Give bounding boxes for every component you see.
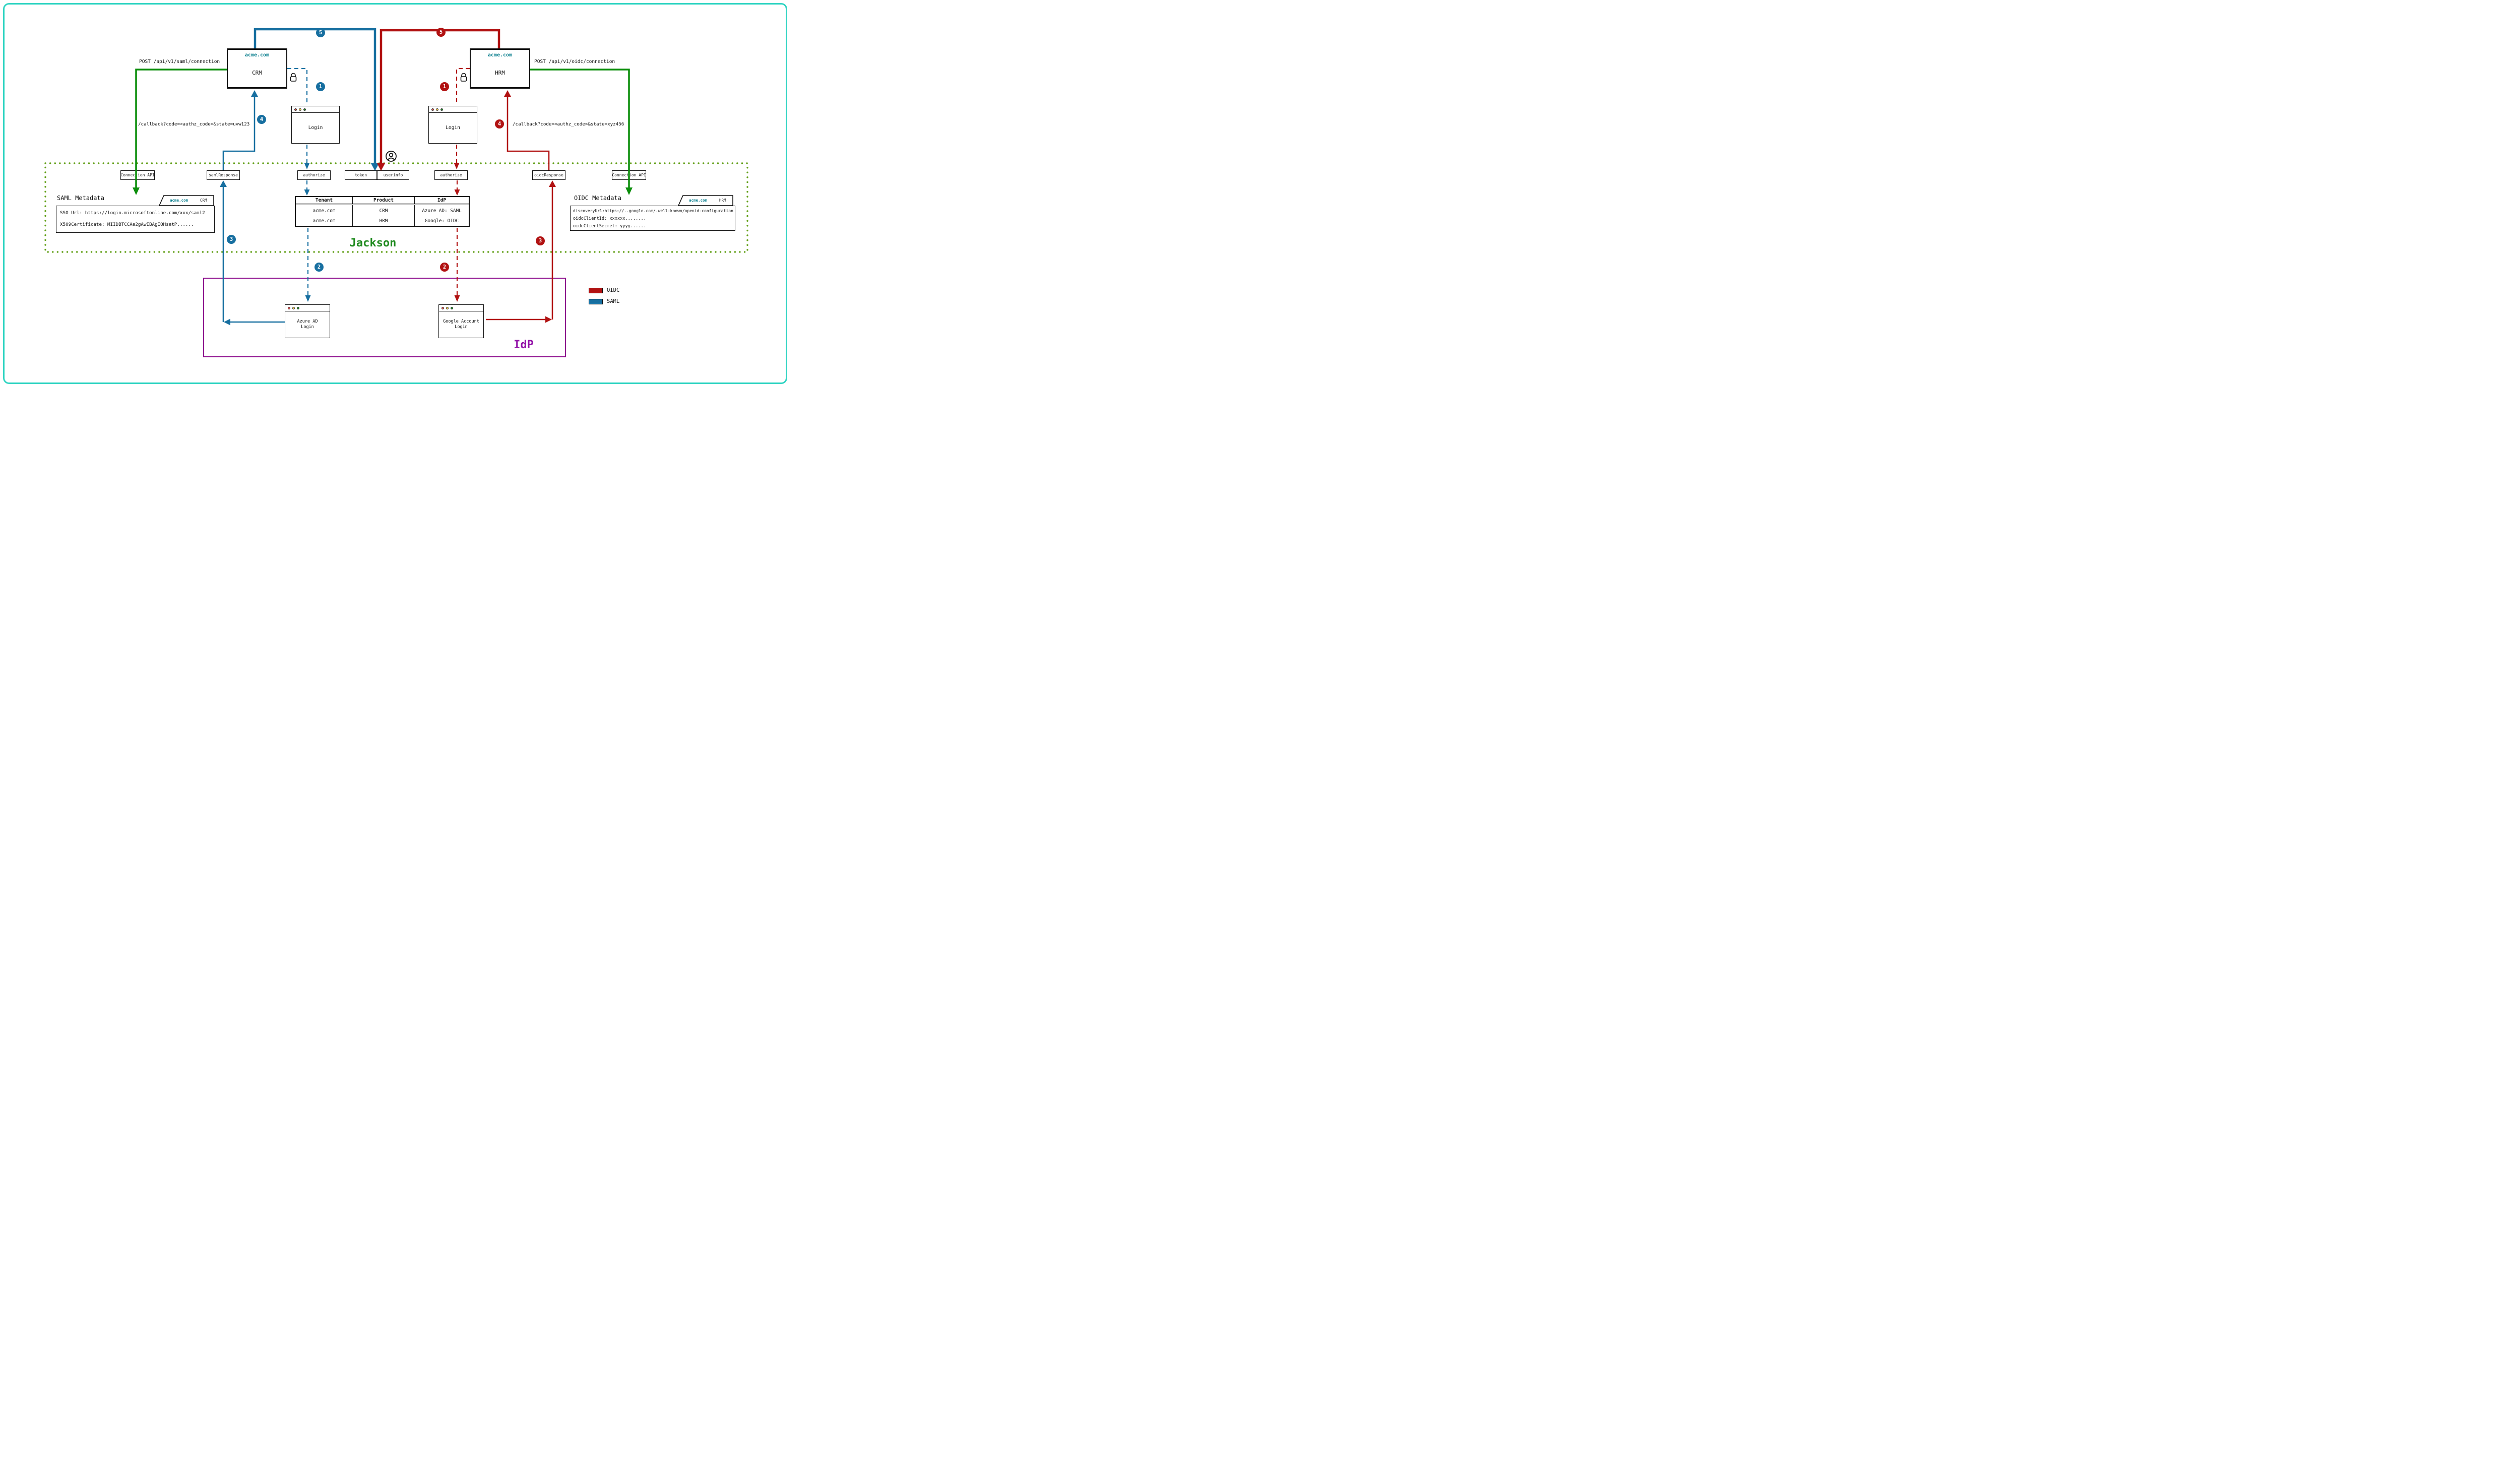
window-minimize-icon — [436, 108, 438, 111]
hrm-name: HRM — [495, 58, 505, 87]
idp-label: IdP — [506, 339, 541, 351]
table-header-idp: IdP — [415, 197, 469, 204]
table-cell-product: HRM — [353, 216, 415, 226]
table-cell-idp: Azure AD: SAML — [415, 205, 469, 216]
saml-callback-url: /callback?code=<authz_code>&state=uvw123 — [138, 121, 249, 127]
google-login-line: Login — [455, 325, 468, 330]
connections-table: Tenant Product IdP acme.com CRM Azure AD… — [295, 196, 470, 227]
saml-metadata-tab-domain: acme.com — [170, 198, 188, 203]
crm-login-window: Login — [291, 106, 340, 144]
endpoint-connection-api-right: Connection API — [612, 170, 646, 180]
window-close-icon — [288, 307, 290, 309]
saml-connection-api-call: POST /api/v1/saml/connection — [139, 59, 220, 65]
oidc-metadata-line: oidcClientSecret: yyyy...... — [573, 224, 646, 229]
jackson-label: Jackson — [328, 237, 418, 249]
window-close-icon — [294, 108, 297, 111]
table-header-product: Product — [353, 197, 415, 204]
google-login-label: Google Account Login — [439, 311, 483, 338]
endpoint-userinfo: userinfo — [377, 170, 409, 180]
crm-name: CRM — [252, 58, 262, 87]
endpoint-connection-api-left: Connection API — [120, 170, 155, 180]
table-header-row: Tenant Product IdP — [296, 197, 469, 205]
saml-metadata-line: X509Certificate: MIIDBTCCAe2gAwIBAgIQHse… — [60, 222, 194, 227]
saml-metadata-title: SAML Metadata — [57, 195, 104, 202]
table-cell-idp: Google: OIDC — [415, 216, 469, 226]
outer-frame — [3, 3, 787, 384]
table-row: acme.com CRM Azure AD: SAML — [296, 205, 469, 216]
endpoint-authorize-oidc: authorize — [434, 170, 468, 180]
legend-saml-swatch — [589, 299, 603, 304]
saml-metadata-line: SSO Url: https://login.microsoftonline.c… — [60, 210, 205, 216]
endpoint-token: token — [345, 170, 377, 180]
hrm-app-box: acme.com HRM — [470, 48, 530, 89]
azure-ad-login-line: Azure AD — [297, 319, 318, 325]
oidc-metadata-box: discoveryUrl:https://..google.com/.well-… — [570, 206, 735, 231]
oidc-metadata-tab-domain: acme.com — [689, 198, 707, 203]
sso-flow-diagram: acme.com CRM acme.com HRM POST /api/v1/s… — [0, 0, 790, 387]
window-close-icon — [431, 108, 434, 111]
saml-metadata-tab-app: CRM — [200, 198, 207, 203]
google-login-line: Google Account — [443, 319, 479, 325]
window-minimize-icon — [292, 307, 295, 309]
endpoint-oidc-response: oidcResponse — [532, 170, 565, 180]
hrm-domain: acme.com — [488, 52, 512, 58]
window-maximize-icon — [297, 307, 299, 309]
crm-login-window-label: Login — [292, 112, 339, 143]
crm-app-box: acme.com CRM — [227, 48, 287, 89]
azure-ad-login-window: Azure AD Login — [285, 304, 330, 338]
endpoint-authorize-saml: authorize — [297, 170, 331, 180]
hrm-login-window: Login — [428, 106, 477, 144]
window-minimize-icon — [446, 307, 449, 309]
azure-ad-login-label: Azure AD Login — [285, 311, 330, 338]
saml-metadata-box: SSO Url: https://login.microsoftonline.c… — [56, 206, 215, 233]
oidc-metadata-title: OIDC Metadata — [574, 195, 621, 202]
legend-oidc-label: OIDC — [607, 287, 619, 293]
table-header-tenant: Tenant — [296, 197, 353, 204]
oidc-metadata-tab-app: HRM — [719, 198, 726, 203]
legend-oidc-swatch — [589, 288, 603, 293]
window-close-icon — [442, 307, 444, 309]
window-maximize-icon — [440, 108, 443, 111]
table-cell-tenant: acme.com — [296, 205, 353, 216]
window-maximize-icon — [303, 108, 306, 111]
oidc-connection-api-call: POST /api/v1/oidc/connection — [534, 59, 615, 65]
table-cell-tenant: acme.com — [296, 216, 353, 226]
endpoint-saml-response: samlResponse — [207, 170, 240, 180]
oidc-metadata-line: discoveryUrl:https://..google.com/.well-… — [573, 209, 733, 213]
table-row: acme.com HRM Google: OIDC — [296, 216, 469, 226]
table-cell-product: CRM — [353, 205, 415, 216]
oidc-callback-url: /callback?code=<authz_code>&state=xyz456 — [513, 121, 624, 127]
azure-ad-login-line: Login — [301, 325, 314, 330]
hrm-login-window-label: Login — [429, 112, 477, 143]
crm-domain: acme.com — [245, 52, 269, 58]
google-login-window: Google Account Login — [438, 304, 484, 338]
legend-saml-label: SAML — [607, 298, 619, 304]
window-maximize-icon — [451, 307, 453, 309]
window-minimize-icon — [299, 108, 301, 111]
oidc-metadata-line: oidcClientId: xxxxxx........ — [573, 216, 646, 221]
